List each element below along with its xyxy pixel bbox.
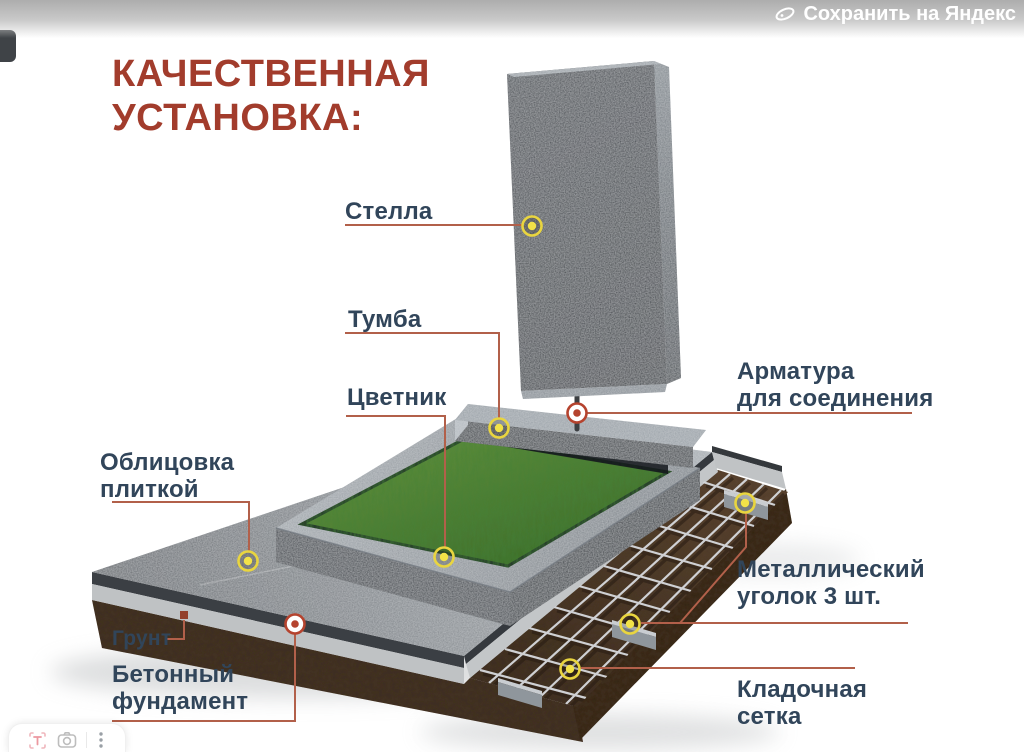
marker-tumba [490, 419, 509, 438]
label-setka: Кладочная сетка [737, 676, 867, 730]
yandex-disk-icon [774, 3, 796, 25]
ocr-button[interactable] [22, 729, 52, 751]
viewer-toolbar [8, 723, 126, 752]
label-stella: Стелла [345, 198, 432, 225]
page-title: КАЧЕСТВЕННАЯ УСТАНОВКА: [112, 53, 430, 140]
marker-armatura [568, 404, 587, 423]
label-grunt: Грунт [112, 627, 171, 651]
marker-stella [523, 217, 542, 236]
more-menu-icon [98, 731, 104, 749]
marker-fundament [286, 615, 305, 634]
label-armatura: Арматура для соединения [737, 358, 933, 412]
yandex-image-viewer: КАЧЕСТВЕННАЯ УСТАНОВКА: Стелла Тумба Цве… [0, 0, 1024, 752]
label-cvetnik: Цветник [347, 384, 446, 411]
save-label: Сохранить на Яндекс [803, 3, 1016, 25]
marker-grunt [180, 611, 188, 619]
marker-oblicovka [239, 552, 258, 571]
viewer-topbar: Сохранить на Яндекс [0, 0, 1024, 38]
save-to-yandex-button[interactable]: Сохранить на Яндекс [774, 3, 1016, 25]
label-oblicovka: Облицовка плиткой [100, 449, 234, 503]
marker-setka [561, 660, 580, 679]
more-button[interactable] [91, 729, 111, 751]
visual-search-button[interactable] [52, 729, 82, 751]
toolbar-divider [86, 732, 87, 748]
label-ugolok: Металлический уголок 3 шт. [737, 556, 925, 610]
marker-cvetnik [435, 548, 454, 567]
text-recognition-icon [28, 731, 47, 750]
label-fundament: Бетонный фундамент [112, 661, 248, 715]
marker-ugolok-2 [621, 615, 640, 634]
visual-search-icon [57, 731, 77, 749]
label-tumba: Тумба [348, 306, 421, 333]
marker-ugolok-1 [736, 494, 755, 513]
